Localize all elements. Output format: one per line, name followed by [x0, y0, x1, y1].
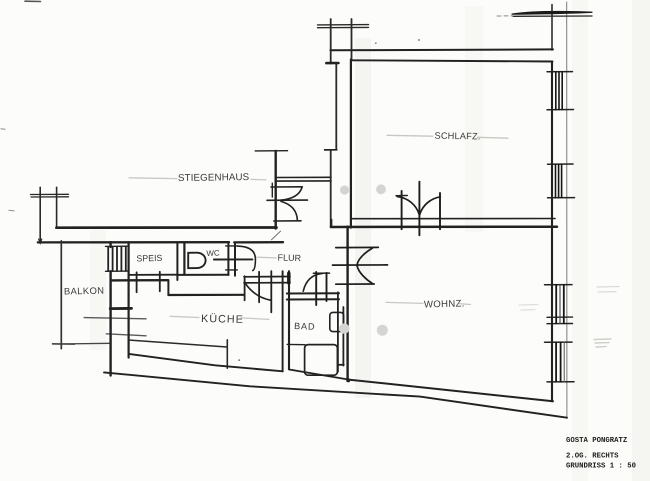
svg-text:WC: WC — [206, 249, 220, 258]
svg-text:GRUNDRISS 1 : 50: GRUNDRISS 1 : 50 — [566, 463, 636, 471]
svg-text:KÜCHE: KÜCHE — [201, 313, 244, 326]
svg-text:SCHLAFZ.: SCHLAFZ. — [434, 131, 480, 142]
svg-text:BALKON: BALKON — [64, 285, 105, 297]
svg-text:GOSTA PONGRATZ: GOSTA PONGRATZ — [566, 437, 628, 445]
svg-text:STIEGENHAUS: STIEGENHAUS — [178, 172, 250, 184]
svg-text:FLUR: FLUR — [277, 253, 301, 264]
svg-text:BAD: BAD — [294, 321, 316, 332]
svg-text:WOHNZ.: WOHNZ. — [424, 298, 465, 310]
svg-text:SPEIS: SPEIS — [136, 253, 162, 264]
svg-text:2.OG. RECHTS: 2.OG. RECHTS — [566, 452, 619, 460]
